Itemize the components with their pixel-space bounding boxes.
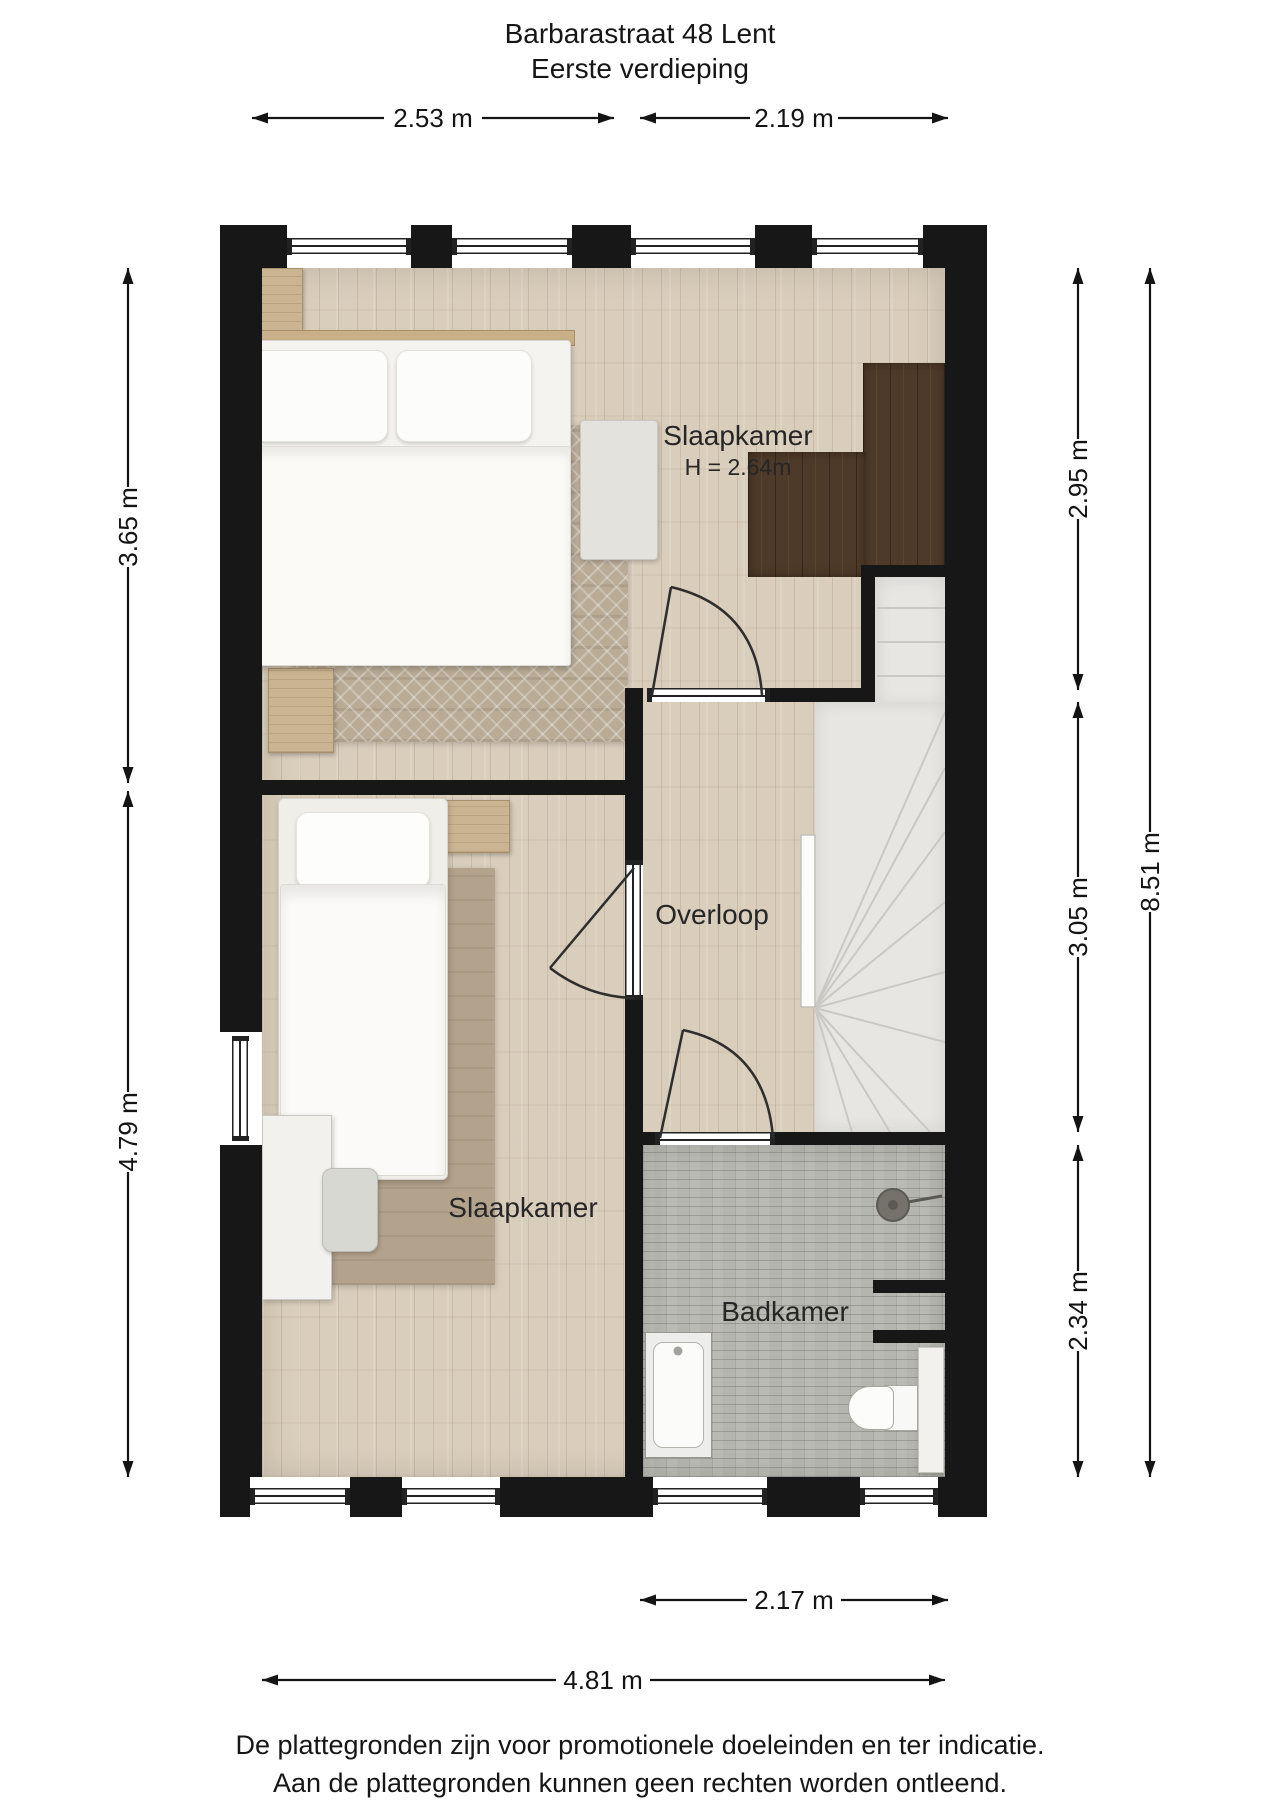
- window-frame: [452, 238, 572, 255]
- room-label-landing: Overloop: [632, 899, 792, 931]
- wall-segment: [873, 1330, 945, 1343]
- wall-segment: [767, 1477, 860, 1517]
- bedroom1-nightstand-bottom: [268, 668, 334, 753]
- wall-segment: [625, 1000, 643, 1477]
- wall-segment: [873, 1280, 945, 1293]
- wall-segment: [643, 1132, 655, 1145]
- window-frame: [812, 238, 923, 255]
- room-label-bathroom: Badkamer: [705, 1296, 865, 1328]
- floor-plan-page: Barbarastraat 48 Lent Eerste verdieping: [0, 0, 1280, 1810]
- stairwell-lower: [815, 702, 945, 1132]
- wall-segment: [625, 688, 643, 860]
- bathtub-basin: [653, 1342, 704, 1448]
- dim-right-total: 8.51 m: [1135, 817, 1165, 927]
- wall-segment: [500, 1477, 653, 1517]
- plan-title-address: Barbarastraat 48 Lent: [0, 16, 1280, 51]
- wall-segment: [220, 1145, 262, 1517]
- disclaimer-line1: De plattegronden zijn voor promotionele …: [0, 1726, 1280, 1764]
- bed1-pillow-right: [396, 350, 532, 442]
- wall-segment: [572, 225, 631, 268]
- dim-right-2: 3.05 m: [1063, 862, 1093, 972]
- plan-title: Barbarastraat 48 Lent Eerste verdieping: [0, 16, 1280, 86]
- bathroom-cabinet: [918, 1347, 944, 1473]
- dim-bottom-bathroom: 2.17 m: [739, 1585, 849, 1615]
- wall-segment: [770, 688, 875, 702]
- dim-right-3: 2.34 m: [1063, 1256, 1093, 1366]
- window-frame: [860, 1488, 938, 1505]
- wall-segment: [861, 577, 875, 702]
- dim-bottom-total: 4.81 m: [548, 1665, 658, 1695]
- dim-right-1: 2.95 m: [1063, 424, 1093, 534]
- bed1-pillow-left: [252, 350, 388, 442]
- window-frame: [250, 1488, 350, 1505]
- dim-left-upper: 3.65 m: [113, 472, 143, 582]
- wall-segment: [945, 225, 987, 1517]
- wall-segment: [262, 780, 643, 795]
- room-label-bedroom2: Slaapkamer: [443, 1192, 603, 1224]
- disclaimer-line2: Aan de plattegronden kunnen geen rechten…: [0, 1764, 1280, 1802]
- window-frame: [287, 238, 411, 255]
- bedroom1-wardrobe: [863, 363, 945, 577]
- wall-segment: [411, 225, 452, 268]
- bedroom1-bench: [580, 420, 658, 560]
- window-frame: [232, 1036, 249, 1141]
- wall-segment: [938, 1477, 948, 1517]
- bed1-duvet: [244, 446, 571, 666]
- wall-segment: [220, 225, 262, 1032]
- bedroom2-chair: [322, 1168, 378, 1252]
- door-bedroom1: [647, 688, 770, 702]
- wall-segment: [220, 1477, 250, 1517]
- dim-top-left: 2.53 m: [378, 103, 488, 133]
- door-bathroom: [655, 1132, 775, 1145]
- plan-title-floor: Eerste verdieping: [0, 51, 1280, 86]
- disclaimer: De plattegronden zijn voor promotionele …: [0, 1726, 1280, 1802]
- dim-top-right: 2.19 m: [739, 103, 849, 133]
- dim-left-lower: 4.79 m: [113, 1077, 143, 1187]
- window-frame: [402, 1488, 500, 1505]
- wall-segment: [350, 1477, 402, 1517]
- window-frame: [631, 238, 755, 255]
- wall-segment: [775, 1132, 945, 1145]
- bed2-pillow: [296, 812, 430, 888]
- window-frame: [653, 1488, 767, 1505]
- wall-segment: [861, 565, 945, 577]
- room-label-bedroom1: Slaapkamer: [658, 420, 818, 452]
- stairwell-upper: [875, 577, 945, 707]
- room-label-bedroom1-height: H = 2.64m: [658, 454, 818, 481]
- wall-segment: [755, 225, 812, 268]
- toilet-bowl: [848, 1386, 894, 1430]
